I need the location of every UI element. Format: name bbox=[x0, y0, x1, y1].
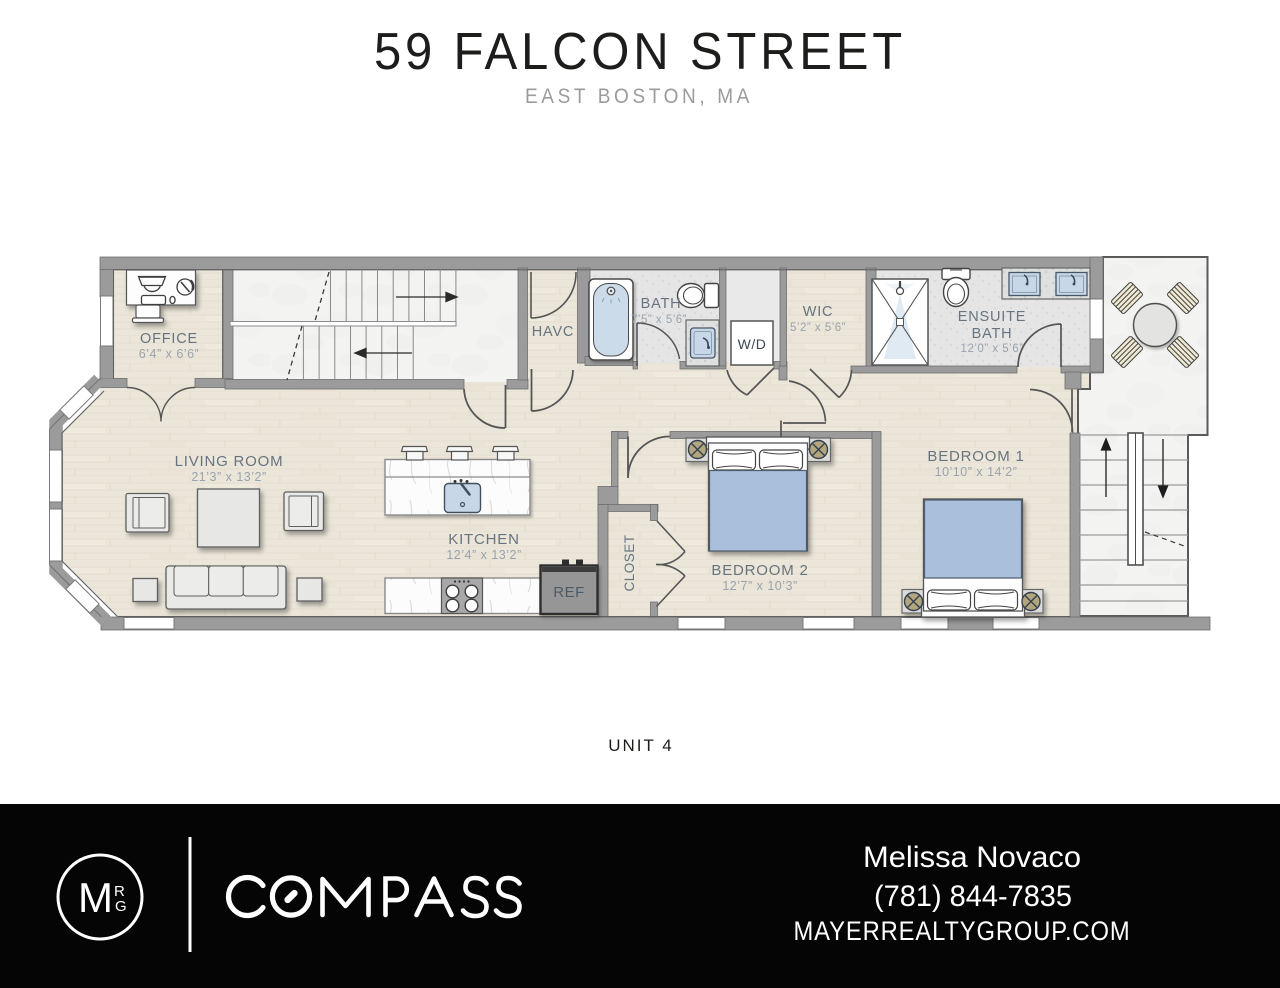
svg-text:KITCHEN: KITCHEN bbox=[448, 531, 519, 548]
svg-text:5’2” x 5’6”: 5’2” x 5’6” bbox=[790, 322, 846, 334]
svg-text:LIVING ROOM: LIVING ROOM bbox=[175, 453, 284, 470]
svg-text:6’4” x 6’6”: 6’4” x 6’6” bbox=[139, 347, 199, 361]
svg-text:(781) 844-7835: (781) 844-7835 bbox=[874, 880, 1072, 913]
svg-text:BATH: BATH bbox=[641, 296, 682, 312]
svg-text:M: M bbox=[78, 874, 113, 921]
svg-text:EAST BOSTON, MA: EAST BOSTON, MA bbox=[525, 85, 753, 108]
svg-text:UNIT 4: UNIT 4 bbox=[608, 736, 674, 755]
svg-text:CLOSET: CLOSET bbox=[622, 534, 637, 591]
svg-text:12’0” x 5’6”: 12’0” x 5’6” bbox=[961, 343, 1024, 355]
svg-text:21’3” x 13’2”: 21’3” x 13’2” bbox=[191, 470, 266, 484]
svg-text:REF: REF bbox=[553, 584, 585, 601]
svg-text:BEDROOM 2: BEDROOM 2 bbox=[711, 562, 808, 579]
svg-text:12’4” x 13’2”: 12’4” x 13’2” bbox=[446, 548, 521, 562]
svg-text:Melissa Novaco: Melissa Novaco bbox=[863, 841, 1081, 874]
svg-text:BATH: BATH bbox=[972, 326, 1013, 342]
svg-text:OFFICE: OFFICE bbox=[140, 331, 198, 347]
svg-text:10’10” x 14’2”: 10’10” x 14’2” bbox=[935, 465, 1018, 479]
svg-text:BEDROOM 1: BEDROOM 1 bbox=[927, 448, 1024, 465]
svg-text:WIC: WIC bbox=[803, 304, 834, 320]
svg-text:12’7” x 10’3”: 12’7” x 10’3” bbox=[722, 579, 797, 593]
svg-text:MAYERREALTYGROUP.COM: MAYERREALTYGROUP.COM bbox=[794, 916, 1131, 946]
svg-text:W/D: W/D bbox=[738, 336, 767, 352]
svg-text:59 FALCON STREET: 59 FALCON STREET bbox=[374, 23, 906, 81]
svg-text:HAVC: HAVC bbox=[532, 324, 574, 340]
svg-text:7’5” x 5’6”: 7’5” x 5’6” bbox=[631, 314, 687, 326]
svg-text:ENSUITE: ENSUITE bbox=[958, 309, 1026, 325]
svg-text:G: G bbox=[115, 898, 127, 915]
